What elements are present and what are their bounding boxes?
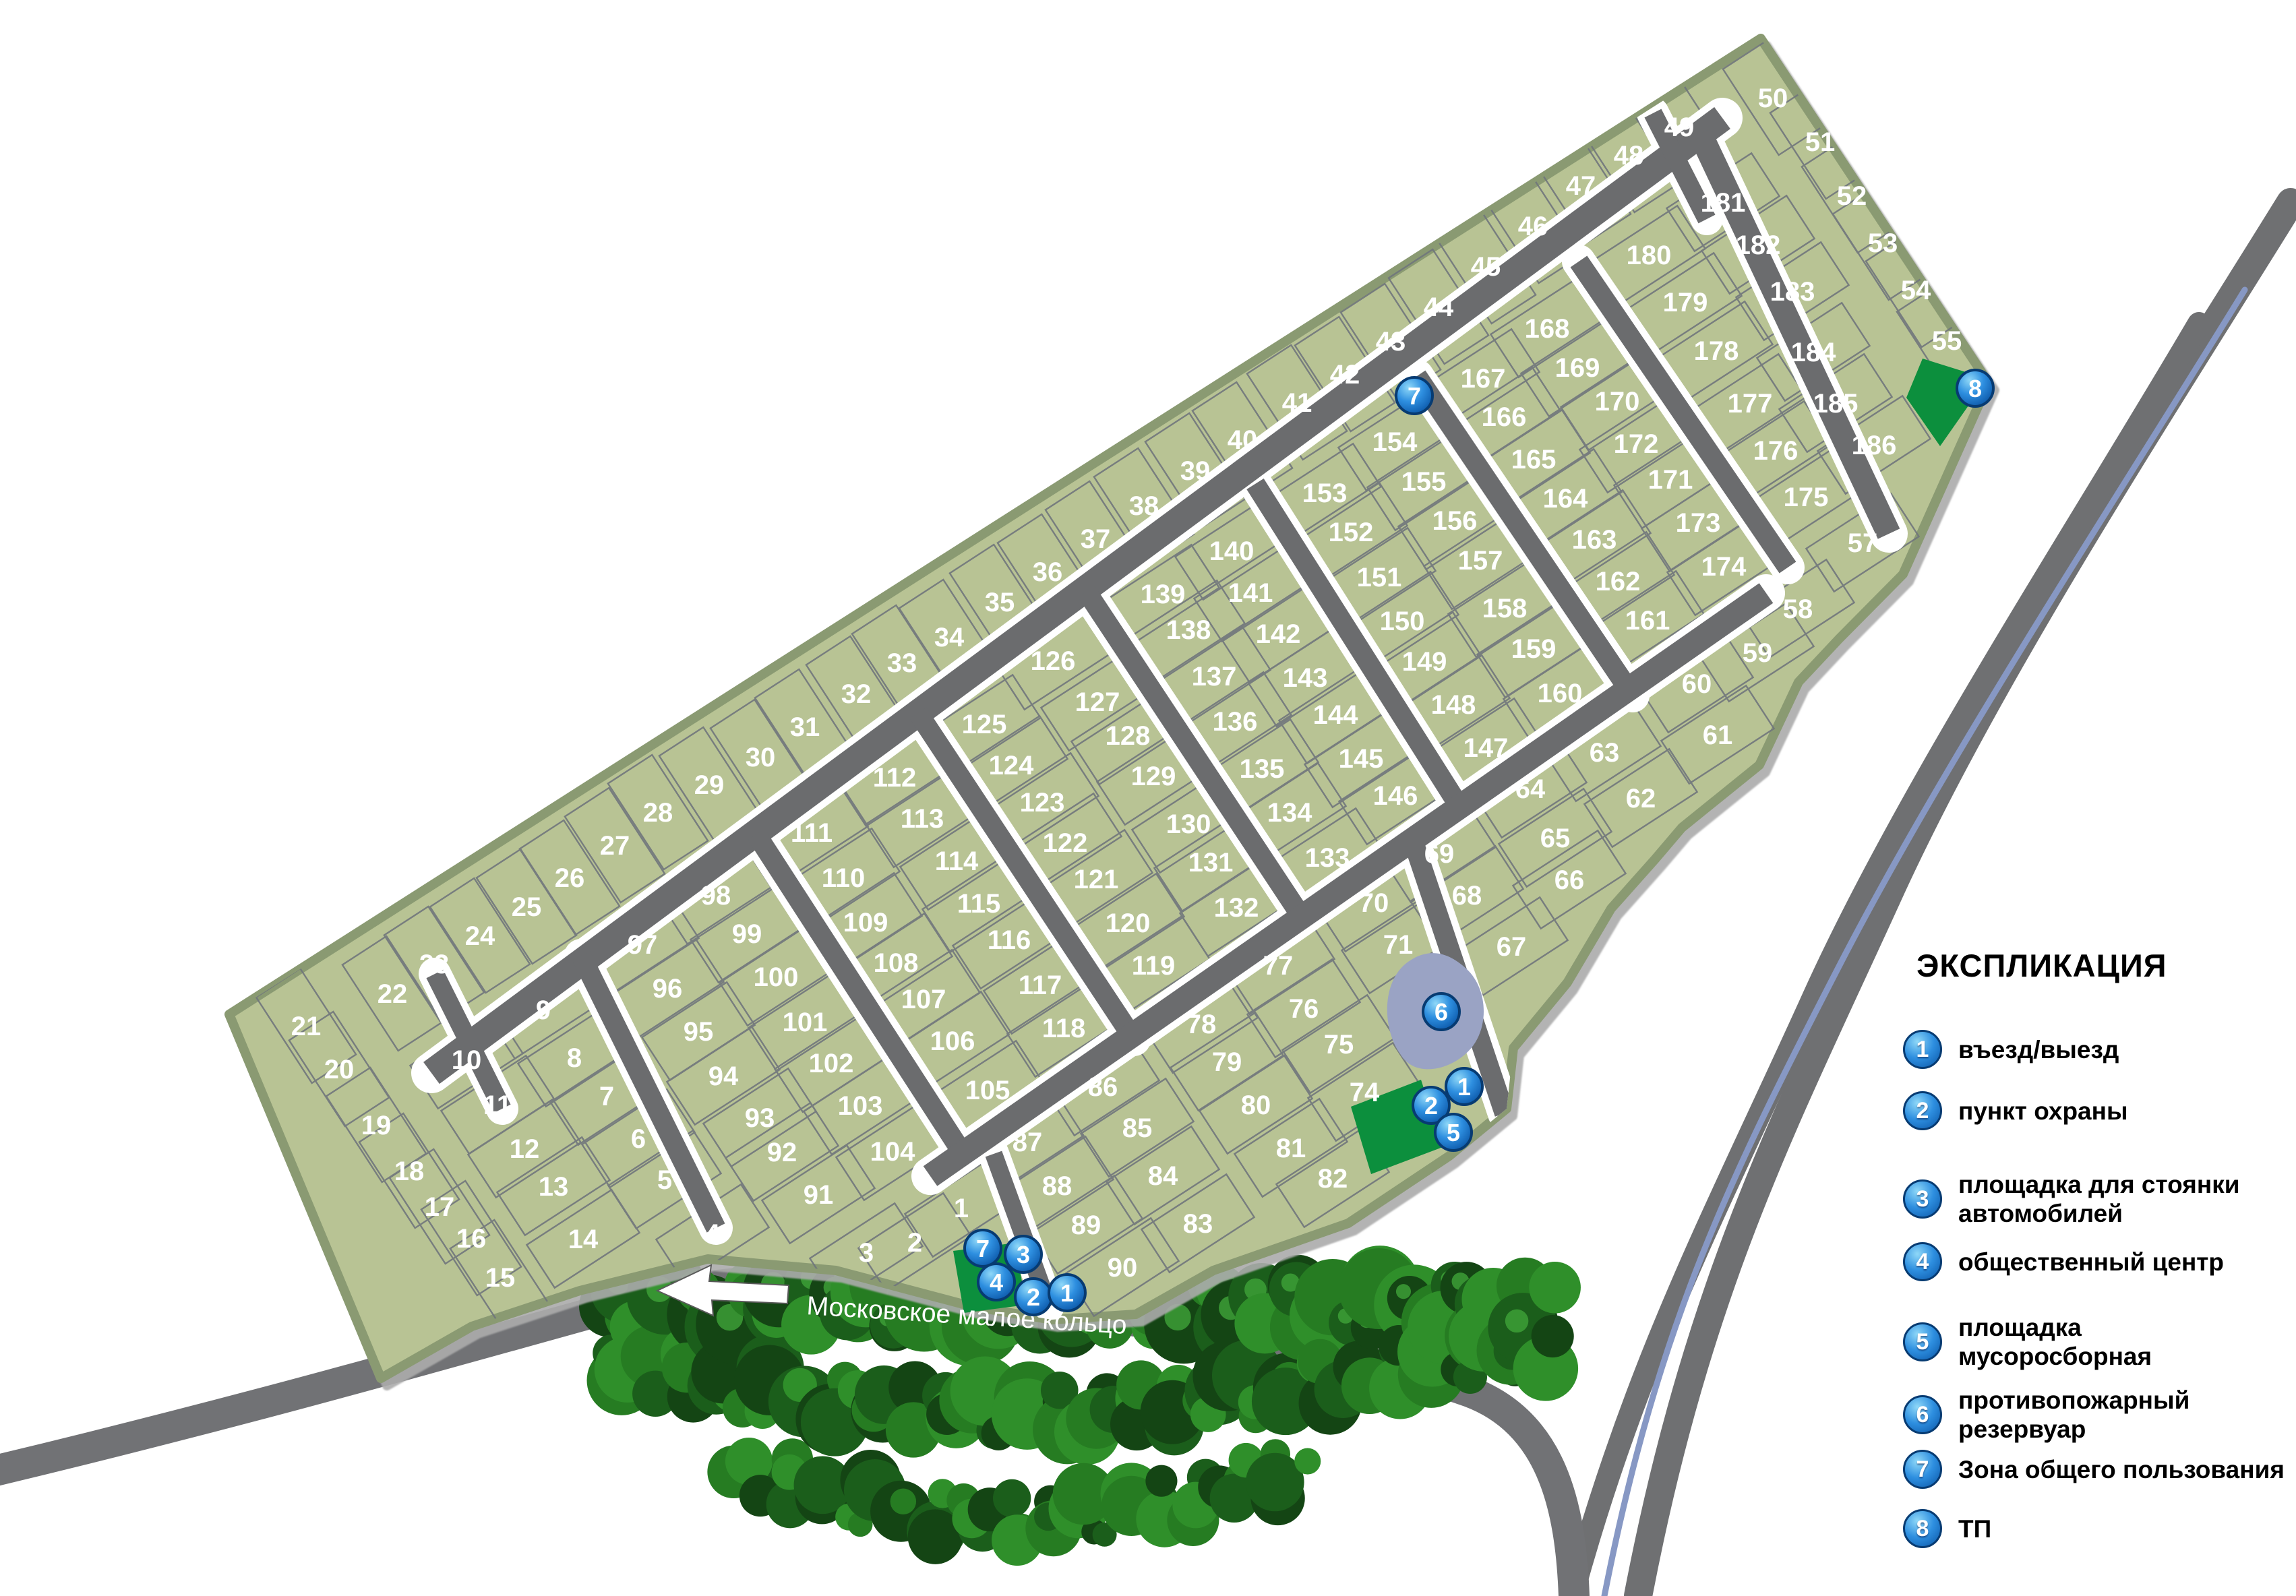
- legend-item-8: 8ТП: [1903, 1509, 1991, 1548]
- plot-number: 168: [1525, 314, 1570, 344]
- plot-number: 87: [1013, 1128, 1043, 1157]
- plot-number: 35: [985, 588, 1015, 617]
- plot-number: 69: [1424, 839, 1455, 869]
- plot-number: 136: [1213, 707, 1258, 737]
- plot-number: 158: [1482, 594, 1528, 623]
- plot-number: 185: [1813, 389, 1859, 419]
- plot-number: 21: [291, 1012, 322, 1041]
- plot-number: 70: [1359, 888, 1389, 918]
- plot-number: 142: [1256, 619, 1301, 649]
- plot-number: 144: [1313, 700, 1358, 730]
- plot-number: 15: [485, 1263, 516, 1293]
- plot-number: 14: [568, 1225, 599, 1254]
- plot-number: 16: [456, 1224, 487, 1254]
- marker-number: 1: [1060, 1279, 1074, 1307]
- plot-number: 183: [1770, 277, 1815, 307]
- marker-number: 7: [1408, 382, 1421, 410]
- plot-number: 98: [701, 881, 731, 911]
- plot-number: 150: [1380, 607, 1425, 636]
- plot-number: 147: [1463, 733, 1509, 763]
- legend-item-4: 4общественный центр: [1903, 1242, 2224, 1281]
- legend-item-label: въезд/выезд: [1958, 1035, 2119, 1064]
- plot-number: 159: [1511, 634, 1557, 664]
- tree-blob: [1145, 1465, 1177, 1497]
- plot-number: 129: [1131, 762, 1176, 791]
- plot-number: 135: [1240, 754, 1285, 784]
- plot-number: 184: [1791, 338, 1836, 367]
- map-marker: 4: [978, 1264, 1015, 1300]
- legend-item-3: 3площадка для стоянки автомобилей: [1903, 1170, 2239, 1228]
- plot-number: 75: [1324, 1030, 1354, 1060]
- plot-number: 167: [1461, 364, 1506, 394]
- plot-number: 112: [873, 763, 917, 793]
- plot-number: 55: [1932, 326, 1962, 356]
- plot-number: 153: [1302, 479, 1348, 508]
- marker-number: 5: [1447, 1119, 1460, 1146]
- plot-number: 19: [361, 1111, 392, 1140]
- plot-number: 152: [1329, 518, 1374, 547]
- plot-number: 67: [1497, 932, 1527, 962]
- marker-number: 7: [976, 1235, 990, 1262]
- plot-number: 32: [841, 679, 872, 709]
- legend-item-6: 6противопожарный резервуар: [1903, 1386, 2189, 1444]
- tree-blob: [890, 1489, 916, 1514]
- plot-number: 165: [1511, 445, 1557, 474]
- plot-number: 123: [1020, 788, 1065, 818]
- plot-number: 100: [754, 962, 799, 992]
- plot-number: 28: [643, 798, 673, 828]
- legend-item-7: 7Зона общего пользования: [1903, 1450, 2285, 1489]
- tree-blob: [993, 1479, 1031, 1517]
- map-marker: 6: [1423, 993, 1459, 1030]
- tree-highlight: [1396, 1284, 1411, 1299]
- plot-number: 43: [1376, 327, 1406, 357]
- plot-number: 4: [705, 1219, 721, 1249]
- plot-number: 138: [1166, 615, 1211, 645]
- plot-number: 62: [1626, 784, 1656, 814]
- plot-number: 22: [377, 979, 408, 1009]
- plot-number: 86: [1088, 1072, 1118, 1102]
- plot-number: 121: [1074, 865, 1119, 894]
- plot-number: 42: [1330, 360, 1360, 390]
- plot-number: 49: [1664, 113, 1695, 142]
- marker-number: 2: [1424, 1092, 1438, 1119]
- plot-number: 99: [732, 919, 762, 949]
- plot-number: 39: [1180, 456, 1211, 486]
- plot-number: 132: [1214, 893, 1259, 923]
- plot-number: 148: [1431, 690, 1476, 720]
- plot-number: 120: [1106, 909, 1151, 938]
- plot-number: 29: [694, 770, 725, 800]
- plot-number: 102: [809, 1049, 854, 1078]
- plot-number: 101: [783, 1008, 828, 1037]
- marker-number: 1: [1457, 1073, 1471, 1101]
- map-marker: 7: [1396, 377, 1432, 414]
- plot-number: 5: [657, 1165, 672, 1195]
- plot-number: 83: [1183, 1209, 1213, 1239]
- plot-number: 164: [1543, 484, 1588, 514]
- marker-number: 2: [1027, 1283, 1040, 1311]
- legend-title: ЭКСПЛИКАЦИЯ: [1916, 947, 2167, 984]
- plot-number: 76: [1289, 994, 1319, 1024]
- plot-number: 26: [555, 863, 585, 893]
- plot-number: 63: [1590, 738, 1620, 768]
- plot-number: 37: [1081, 524, 1111, 554]
- plot-number: 36: [1033, 557, 1063, 587]
- plot-number: 90: [1108, 1253, 1138, 1283]
- plot-number: 154: [1372, 427, 1418, 457]
- tree-blob: [1529, 1262, 1581, 1314]
- map-marker: 8: [1957, 370, 1993, 406]
- plot-number: 53: [1868, 228, 1898, 258]
- plot-number: 18: [394, 1157, 425, 1186]
- plot-number: 93: [745, 1103, 775, 1133]
- plot-number: 179: [1663, 288, 1708, 317]
- plot-number: 30: [746, 743, 776, 772]
- plot-number: 58: [1783, 594, 1813, 624]
- plot-number: 88: [1042, 1171, 1073, 1201]
- plot-number: 114: [935, 847, 979, 876]
- plot-number: 79: [1212, 1047, 1242, 1077]
- legend-item-label: площадка мусоросборная: [1958, 1313, 2152, 1371]
- plot-number: 23: [419, 950, 450, 979]
- plot-number: 20: [324, 1055, 355, 1084]
- plot-number: 155: [1401, 467, 1447, 497]
- legend-marker-3-icon: 3: [1903, 1179, 1942, 1219]
- plot-number: 174: [1701, 552, 1747, 582]
- plot-number: 166: [1482, 402, 1527, 432]
- legend-item-2: 2пункт охраны: [1903, 1091, 2128, 1130]
- plot-number: 143: [1283, 663, 1328, 693]
- plot-number: 3: [859, 1238, 874, 1268]
- plot-number: 111: [791, 818, 833, 848]
- legend-panel: ЭКСПЛИКАЦИЯ 1въезд/выезд2пункт охраны3пл…: [1898, 940, 2296, 1580]
- plot-number: 61: [1703, 720, 1733, 750]
- plot-number: 27: [600, 831, 630, 861]
- plot-number: 81: [1276, 1134, 1306, 1163]
- plot-number: 54: [1901, 276, 1931, 305]
- plot-number: 46: [1518, 212, 1548, 241]
- plot-number: 127: [1075, 687, 1120, 717]
- map-marker: 7: [965, 1230, 1001, 1266]
- plot-number: 157: [1458, 546, 1503, 576]
- plot-number: 91: [804, 1180, 834, 1210]
- plot-number: 137: [1192, 662, 1237, 692]
- tree-highlight: [1164, 1304, 1190, 1330]
- plot-number: 40: [1228, 425, 1258, 455]
- plot-number: 11: [483, 1091, 512, 1120]
- plot-number: 95: [684, 1017, 714, 1047]
- map-marker: 1: [1446, 1068, 1482, 1105]
- plot-number: 24: [465, 921, 495, 951]
- plot-number: 8: [567, 1043, 582, 1073]
- plot-number: 92: [767, 1138, 797, 1167]
- plot-number: 178: [1694, 336, 1739, 366]
- plot-number: 7: [599, 1082, 614, 1111]
- plot-number: 106: [930, 1026, 975, 1056]
- plot-number: 128: [1106, 721, 1151, 751]
- plot-number: 34: [934, 623, 965, 652]
- plot-number: 38: [1129, 491, 1159, 521]
- plot-number: 68: [1452, 881, 1482, 911]
- legend-marker-5-icon: 5: [1903, 1322, 1942, 1361]
- plot-number: 171: [1648, 465, 1693, 495]
- plot-number: 110: [822, 863, 866, 893]
- legend-item-label: Зона общего пользования: [1958, 1455, 2285, 1484]
- plot-number: 107: [901, 985, 946, 1014]
- tree-blob: [1532, 1315, 1574, 1357]
- plot-number: 12: [510, 1134, 540, 1164]
- plot-number: 116: [988, 925, 1031, 955]
- plot-number: 47: [1566, 171, 1596, 201]
- plot-number: 77: [1263, 951, 1294, 981]
- plot-number: 109: [843, 908, 888, 938]
- plot-number: 31: [790, 712, 820, 742]
- plot-number: 97: [628, 930, 658, 960]
- plot-number: 66: [1554, 865, 1585, 895]
- plot-number: 13: [539, 1172, 569, 1202]
- plot-number: 161: [1625, 606, 1670, 636]
- legend-item-label: пункт охраны: [1958, 1097, 2128, 1126]
- plot-number: 122: [1043, 828, 1088, 858]
- marker-number: 8: [1968, 375, 1982, 402]
- marker-number: 3: [1017, 1241, 1030, 1268]
- marker-number: 6: [1434, 998, 1448, 1026]
- plot-number: 140: [1209, 536, 1255, 566]
- plot-number: 186: [1852, 431, 1897, 460]
- map-marker: 5: [1435, 1114, 1472, 1150]
- plot-number: 115: [957, 889, 1001, 919]
- legend-item-label: общественный центр: [1958, 1248, 2224, 1277]
- plot-number: 44: [1424, 293, 1454, 322]
- map-marker: 3: [1005, 1236, 1041, 1272]
- legend-item-label: противопожарный резервуар: [1958, 1386, 2189, 1444]
- plot-number: 48: [1614, 141, 1644, 171]
- plot-number: 156: [1432, 506, 1478, 536]
- plot-number: 173: [1676, 508, 1721, 538]
- plot-number: 85: [1122, 1113, 1153, 1143]
- plot-number: 172: [1614, 429, 1659, 459]
- plot-number: 180: [1627, 241, 1672, 270]
- plot-number: 41: [1282, 388, 1312, 418]
- legend-marker-6-icon: 6: [1903, 1395, 1942, 1434]
- plot-number: 177: [1728, 389, 1773, 419]
- plot-number: 181: [1701, 188, 1746, 218]
- plot-number: 52: [1837, 181, 1867, 211]
- map-marker: 2: [1015, 1279, 1052, 1315]
- plot-number: 80: [1241, 1091, 1271, 1120]
- plot-number: 64: [1515, 774, 1546, 804]
- plot-number: 96: [653, 974, 683, 1004]
- plot-number: 82: [1318, 1164, 1348, 1194]
- plot-number: 51: [1805, 127, 1836, 157]
- plot-number: 134: [1267, 798, 1312, 828]
- plot-number: 146: [1373, 781, 1418, 811]
- plot-number: 71: [1383, 930, 1414, 960]
- plot-number: 108: [874, 948, 919, 978]
- plot-number: 130: [1166, 809, 1211, 839]
- plot-number: 59: [1743, 638, 1773, 668]
- plot-number: 84: [1148, 1161, 1178, 1191]
- plot-number: 119: [1132, 951, 1176, 981]
- plot-number: 78: [1186, 1010, 1217, 1039]
- plot-number: 182: [1736, 231, 1781, 260]
- plot-number: 74: [1350, 1078, 1380, 1107]
- plot-number: 105: [965, 1076, 1010, 1105]
- plot-number: 133: [1305, 843, 1350, 873]
- plot-number: 163: [1572, 525, 1617, 555]
- plot-number: 2: [907, 1228, 922, 1258]
- plot-number: 9: [536, 995, 551, 1025]
- plot-number: 124: [989, 751, 1034, 780]
- plot-number: 118: [1042, 1014, 1086, 1043]
- plot-number: 94: [708, 1062, 739, 1091]
- plot-number: 117: [1019, 971, 1062, 1000]
- plot-number: 169: [1555, 353, 1600, 383]
- plot-number: 139: [1141, 580, 1186, 609]
- plot-number: 162: [1596, 567, 1641, 596]
- plot-number: 145: [1339, 744, 1384, 774]
- plot-number: 170: [1595, 387, 1640, 417]
- plot-number: 126: [1031, 646, 1076, 676]
- plot-number: 160: [1538, 679, 1583, 708]
- legend-marker-1-icon: 1: [1903, 1030, 1942, 1069]
- plot-number: 149: [1402, 647, 1447, 677]
- legend-item-1: 1въезд/выезд: [1903, 1030, 2119, 1069]
- plot-number: 175: [1784, 483, 1829, 512]
- legend-item-label: ТП: [1958, 1514, 1991, 1543]
- plot-number: 131: [1188, 848, 1234, 878]
- plot-number: 103: [838, 1091, 883, 1121]
- plot-number: 10: [452, 1045, 482, 1075]
- legend-item-5: 5площадка мусоросборная: [1903, 1313, 2152, 1371]
- legend-marker-4-icon: 4: [1903, 1242, 1942, 1281]
- site-plan-page: 1234567891011121314151617181920212223242…: [0, 0, 2296, 1596]
- plot-number: 89: [1071, 1210, 1101, 1240]
- plot-number: 45: [1471, 252, 1501, 282]
- plot-number: 50: [1758, 84, 1788, 113]
- plot-number: 125: [962, 710, 1007, 739]
- plot-number: 6: [631, 1124, 646, 1154]
- legend-marker-8-icon: 8: [1903, 1509, 1942, 1548]
- plot-number: 25: [512, 892, 542, 922]
- tree-blob: [1294, 1448, 1321, 1474]
- plot-number: 57: [1848, 528, 1878, 558]
- plot-number: 33: [887, 648, 917, 678]
- plot-number: 176: [1753, 436, 1799, 466]
- plot-number: 151: [1357, 563, 1402, 592]
- plot-number: 1: [954, 1194, 969, 1223]
- marker-number: 4: [990, 1268, 1003, 1296]
- plot-number: 113: [901, 804, 944, 834]
- legend-marker-7-icon: 7: [1903, 1450, 1942, 1489]
- plot-number: 141: [1228, 578, 1273, 608]
- plot-number: 65: [1540, 824, 1571, 853]
- tree-highlight: [1505, 1310, 1528, 1332]
- plot-number: 17: [425, 1192, 455, 1222]
- map-marker: 1: [1049, 1275, 1085, 1311]
- legend-marker-2-icon: 2: [1903, 1091, 1942, 1130]
- plot-number: 104: [870, 1137, 915, 1167]
- legend-item-label: площадка для стоянки автомобилей: [1958, 1170, 2239, 1228]
- plot-number: 60: [1682, 669, 1712, 699]
